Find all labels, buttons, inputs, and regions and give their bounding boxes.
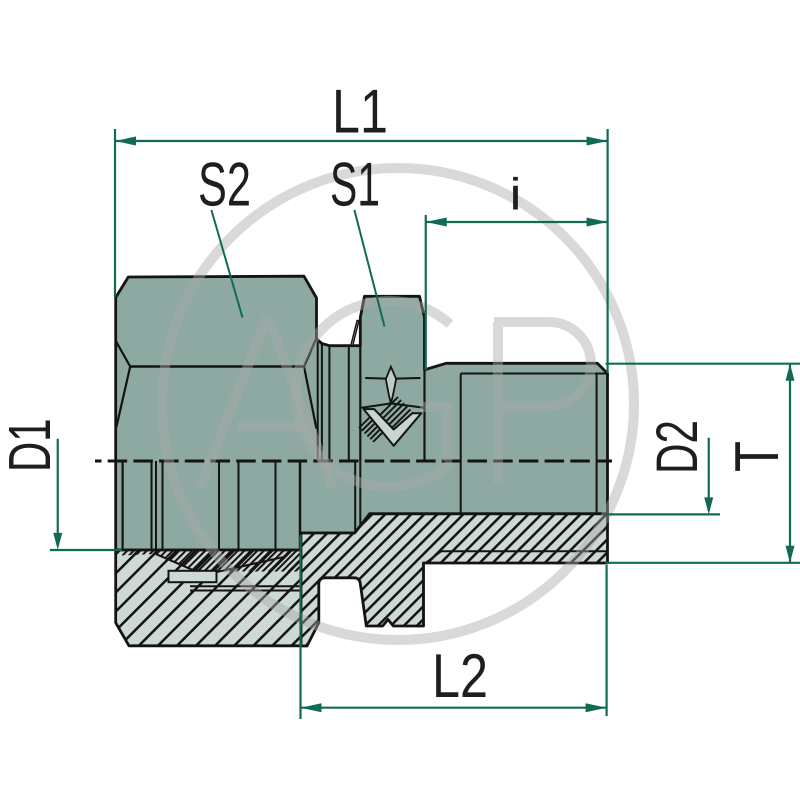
svg-text:S1: S1 [330, 150, 380, 219]
svg-text:D1: D1 [0, 419, 63, 473]
svg-text:L1: L1 [332, 77, 388, 146]
svg-text:D2: D2 [645, 420, 710, 474]
svg-text:S2: S2 [198, 150, 251, 219]
svg-text:L2: L2 [432, 642, 488, 711]
svg-text:T: T [723, 441, 792, 472]
svg-text:i: i [509, 168, 521, 219]
